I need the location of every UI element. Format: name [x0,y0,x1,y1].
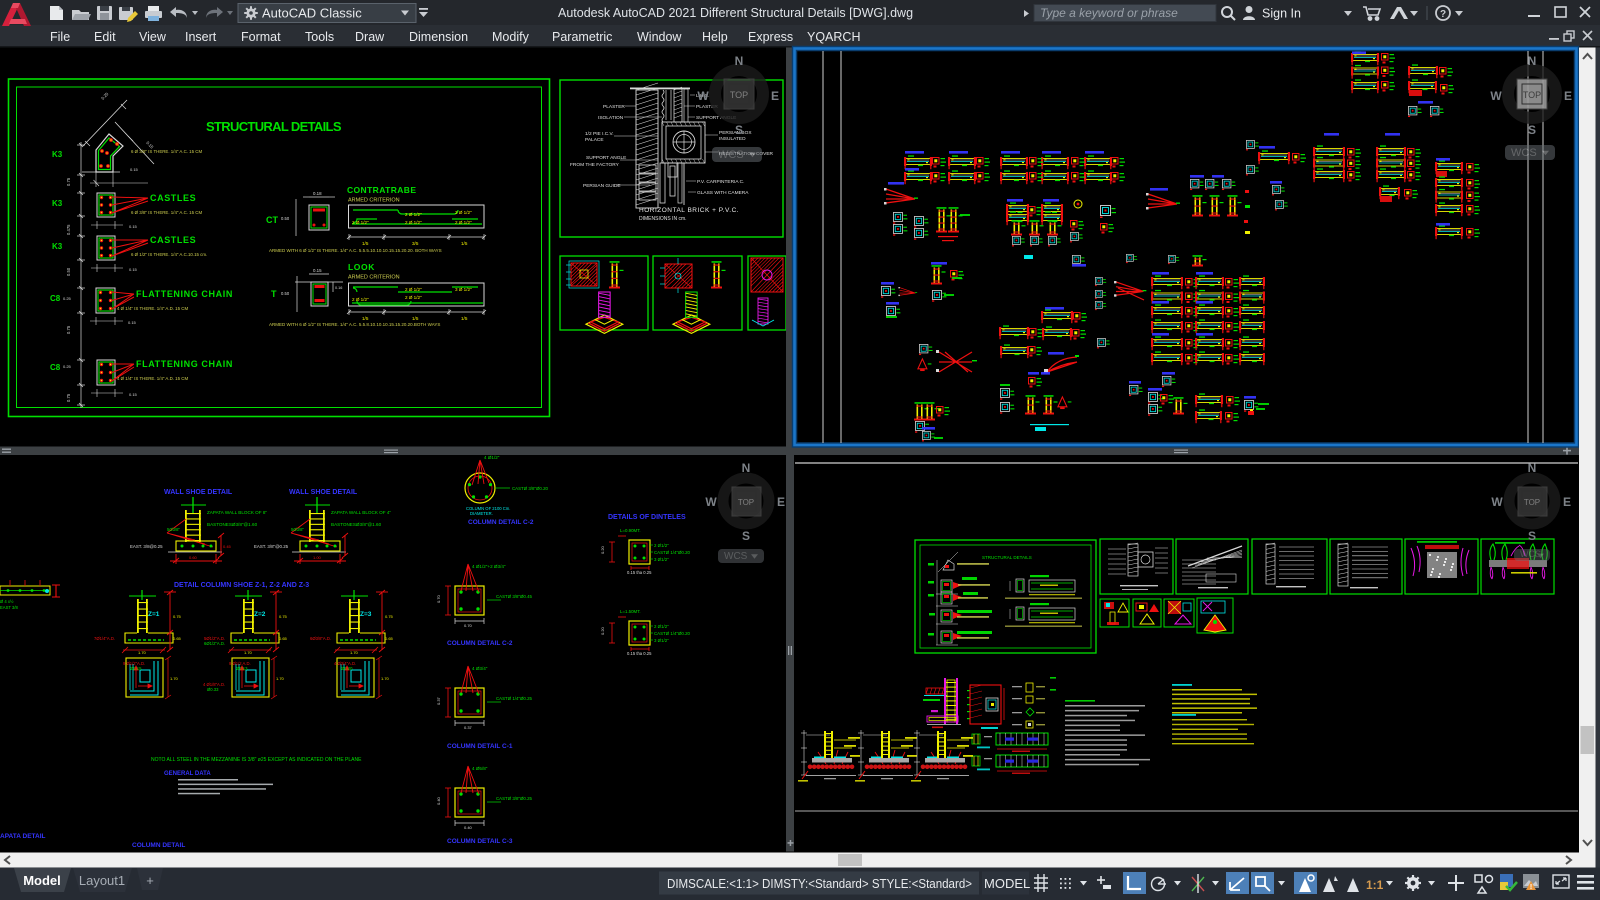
svg-text:CASTØ 1/4"Ø0.25: CASTØ 1/4"Ø0.25 [496,696,533,701]
svg-text:E: E [771,89,779,103]
svg-text:HORIZONTAL BRICK + P.V.C.: HORIZONTAL BRICK + P.V.C. [639,207,739,214]
svg-text:0.37: 0.37 [464,725,473,730]
svg-text:4 Ø 1/4" IS THERE. 1/4" A.D. 1: 4 Ø 1/4" IS THERE. 1/4" A.D. 15 CM [117,306,188,311]
svg-text:Autodesk AutoCAD 2021: Autodesk AutoCAD 2021 [558,6,696,20]
svg-text:K3: K3 [52,150,63,159]
svg-text:Ø 4 x½: Ø 4 x½ [0,599,14,604]
svg-text:2 Ø 1/2": 2 Ø 1/2" [455,220,472,225]
svg-text:WCS: WCS [718,149,744,161]
svg-text:CASTØ 1/4"Ø0.20: CASTØ 1/4"Ø0.20 [654,550,691,555]
svg-text:ISOLATION: ISOLATION [598,115,624,121]
svg-text:0.50: 0.50 [281,291,290,296]
svg-text:DIMENSIONS IN cm.: DIMENSIONS IN cm. [639,216,687,222]
svg-text:0.75: 0.75 [385,614,394,619]
svg-text:Ø0.15: Ø0.15 [130,666,142,671]
svg-text:Ø0.13: Ø0.13 [236,666,248,671]
svg-text:1:1: 1:1 [1366,878,1384,892]
svg-text:Draw: Draw [355,30,385,44]
svg-text:N: N [735,54,744,68]
svg-text:5Ø3/8": 5Ø3/8" [291,527,304,532]
svg-text:Sign In: Sign In [1262,7,1301,21]
svg-text:Modify: Modify [492,30,530,44]
svg-text:0.50: 0.50 [281,216,290,221]
svg-text:1.70: 1.70 [350,650,359,655]
svg-text:1.70: 1.70 [244,650,253,655]
svg-text:0.20: 0.20 [600,626,605,635]
svg-text:BASTONESØ3/8"@1.60: BASTONESØ3/8"@1.60 [207,522,258,527]
svg-text:1/2 PIE I.C.V.: 1/2 PIE I.C.V. [585,131,614,137]
svg-text:COLUMN DETAIL C-2: COLUMN DETAIL C-2 [447,640,513,647]
svg-text:ARMED WITH 6 Ø 1/2" IS T: ARMED WITH 6 Ø 1/2" IS THERE. 1/4" A.C. … [269,248,442,253]
svg-text:1.00: 1.00 [313,555,322,560]
svg-text:APATA DETAIL: APATA DETAIL [0,833,46,840]
svg-text:0.75: 0.75 [66,325,71,334]
svg-text:COLUMN DETAIL C-2: COLUMN DETAIL C-2 [468,519,534,526]
svg-text:AutoCAD Classic: AutoCAD Classic [262,6,362,21]
svg-text:ZAPATA WALL BLOCK OF 8": ZAPATA WALL BLOCK OF 8" [207,510,267,515]
svg-text:CASTØ 3/8"Ø0.45: CASTØ 3/8"Ø0.45 [496,594,533,599]
svg-text:0.15 tha 0.25: 0.15 tha 0.25 [627,570,652,575]
svg-text:CASTLES: CASTLES [150,193,196,203]
svg-text:View: View [139,30,167,44]
svg-text:1/5: 1/5 [461,241,468,246]
svg-text:DETAIL COLUMN SHOE Z-1, Z-2 AN: DETAIL COLUMN SHOE Z-1, Z-2 AND Z-3 [174,582,309,589]
svg-text:0.15: 0.15 [130,167,139,172]
svg-text:1.70: 1.70 [170,676,179,681]
svg-text:0.15: 0.15 [313,268,322,273]
svg-text:0.60: 0.60 [189,555,198,560]
svg-text:S: S [742,529,750,543]
svg-text:0.65: 0.65 [173,636,182,641]
svg-text:0.75: 0.75 [66,177,71,186]
svg-text:0.475: 0.475 [66,224,71,235]
svg-text:MODEL: MODEL [984,876,1030,891]
svg-text:4 Ø3/4": 4 Ø3/4" [472,666,488,671]
svg-text:2 Ø 1/2": 2 Ø 1/2" [352,297,369,302]
svg-text:ZAPATA WALL BLOCK OF 4": ZAPATA WALL BLOCK OF 4" [331,510,391,515]
svg-text:Express: Express [748,30,793,44]
svg-text:0.15: 0.15 [129,392,138,397]
svg-text:1/5: 1/5 [412,316,419,321]
svg-text:Ø0.33: Ø0.33 [207,687,219,692]
svg-text:N: N [1528,54,1537,68]
svg-text:0.50: 0.50 [66,267,71,276]
svg-text:CASTØ 1/4"Ø0.20: CASTØ 1/4"Ø0.20 [654,631,691,636]
svg-text:7Ø1/4"A.D.: 7Ø1/4"A.D. [94,636,115,641]
svg-text:2 Ø 1/2": 2 Ø 1/2" [405,220,422,225]
svg-text:E: E [777,495,785,509]
svg-text:4 Ø5/8": 4 Ø5/8" [472,766,488,771]
svg-text:+: + [146,873,154,888]
svg-text:Edit: Edit [94,30,116,44]
svg-text:Tools: Tools [305,30,334,44]
svg-text:6Ø3/8"A.D.: 6Ø3/8"A.D. [310,636,331,641]
svg-text:3 Ø1/2": 3 Ø1/2" [654,638,669,643]
svg-text:T: T [271,289,277,299]
svg-text:STRUCTURAL DETAILS: STRUCTURAL DETAILS [206,119,343,134]
svg-text:Window: Window [637,30,682,44]
svg-text:DIAMETER.: DIAMETER. [470,511,493,516]
svg-text:1/5: 1/5 [461,316,468,321]
svg-text:0.25: 0.25 [63,296,72,301]
svg-text:Help: Help [702,30,728,44]
svg-text:6 Ø 1/2" IS THERE. 1/4" A.C.10: 6 Ø 1/2" IS THERE. 1/4" A.C.10.15 cm. [131,252,207,257]
svg-text:Format: Format [241,30,281,44]
svg-text:0.75: 0.75 [279,614,288,619]
svg-text:Type a keyword or phrase: Type a keyword or phrase [1040,6,1178,20]
svg-text:TOP: TOP [1523,90,1541,100]
svg-text:Ø0.20: Ø0.20 [341,666,353,671]
svg-text:0.65: 0.65 [279,636,288,641]
svg-text:C8: C8 [50,363,61,372]
svg-text:2 Ø 1/2": 2 Ø 1/2" [352,220,369,225]
svg-text:3 Ø1/2": 3 Ø1/2" [654,557,669,562]
svg-text:N: N [742,461,751,475]
svg-text:Dimension: Dimension [409,30,468,44]
svg-text:Model: Model [23,873,61,888]
svg-text:C8: C8 [50,294,61,303]
svg-text:0.15 tha 0.25: 0.15 tha 0.25 [627,651,652,656]
svg-text:CONTRATRABE: CONTRATRABE [347,185,416,195]
svg-text:0.16: 0.16 [335,286,342,290]
svg-text:0.15: 0.15 [128,320,137,325]
svg-text:6 Ø 3/8" IS THERE. 1/4" A.C. 1: 6 Ø 3/8" IS THERE. 1/4" A.C. 15 CM [131,149,202,154]
svg-text:LOOK: LOOK [348,262,375,272]
svg-text:1.70: 1.70 [276,676,285,681]
svg-text:DIMSCALE:<1:1> DIMSTY:<Standar: DIMSCALE:<1:1> DIMSTY:<Standard> STYLE:<… [667,876,972,891]
svg-text:0.18: 0.18 [313,191,322,196]
svg-text:EAST 3/8: EAST 3/8 [0,605,19,610]
svg-text:WCS: WCS [1511,147,1537,159]
svg-text:0.20: 0.20 [600,545,605,554]
svg-text:COLUMN DETAIL C-1: COLUMN DETAIL C-1 [447,743,513,750]
svg-text:S: S [1528,123,1536,137]
svg-text:K3: K3 [52,199,63,208]
svg-text:E: E [1563,495,1571,509]
svg-text:0.37: 0.37 [436,696,441,705]
svg-text:WALL SHOE DETAIL: WALL SHOE DETAIL [164,489,233,496]
svg-text:ARMED WITH 6 Ø 1/2" IS T: ARMED WITH 6 Ø 1/2" IS THERE. 1/4" A.C. … [269,322,440,327]
svg-text:0.75: 0.75 [173,614,182,619]
svg-text:S: S [735,123,743,137]
svg-text:CT: CT [266,215,278,225]
svg-text:4 Ø 1/4" IS THERE. 1/4" A.D. 1: 4 Ø 1/4" IS THERE. 1/4" A.D. 15 CM [117,376,188,381]
svg-text:COLUMN DETAIL: COLUMN DETAIL [132,842,185,849]
svg-text:0.40: 0.40 [464,825,473,830]
svg-text:0.70: 0.70 [464,623,473,628]
svg-text:L=0.90MT.: L=0.90MT. [620,528,641,533]
svg-text:N: N [1528,461,1537,475]
svg-text:0.15: 0.15 [129,267,138,272]
svg-text:DETAILS OF DINTELES: DETAILS OF DINTELES [608,514,686,521]
svg-text:GENERAL DATA: GENERAL DATA [164,771,211,777]
svg-text:S: S [1528,529,1536,543]
svg-text:6 Ø 3/8" IS THERE. 1/4" A.C. 1: 6 Ø 3/8" IS THERE. 1/4" A.C. 15 CM [131,210,202,215]
svg-text:TOP: TOP [738,498,754,507]
svg-text:BASTONESØ3/8"@1.60: BASTONESØ3/8"@1.60 [331,522,382,527]
svg-text:GLASS WITH CAMERA: GLASS WITH CAMERA [697,190,749,196]
svg-text:W: W [705,495,717,509]
svg-text:1/5: 1/5 [362,241,369,246]
svg-text:FLATTENING CHAIN: FLATTENING CHAIN [136,359,233,369]
svg-text:1.70: 1.70 [381,676,390,681]
svg-text:2 Ø1/2": 2 Ø1/2" [654,543,669,548]
svg-text:PERSIAN GUIDE: PERSIAN GUIDE [583,183,621,189]
svg-text:2 Ø1/2": 2 Ø1/2" [654,624,669,629]
svg-text:W: W [1491,495,1503,509]
svg-text:TOP: TOP [730,90,748,100]
svg-text:2 Ø 1/2": 2 Ø 1/2" [405,287,422,292]
svg-text:0.25: 0.25 [63,364,72,369]
svg-text:WALL SHOE DETAIL: WALL SHOE DETAIL [289,489,358,496]
svg-text:0.45: 0.45 [223,544,232,549]
svg-text:CASTØ 3/8"Ø0.20: CASTØ 3/8"Ø0.20 [512,486,549,491]
svg-text:L=1.50MT.: L=1.50MT. [620,609,641,614]
svg-text:0.40: 0.40 [436,796,441,805]
svg-text:0.75: 0.75 [66,393,71,402]
svg-text:ARMED CRITERION: ARMED CRITERION [348,198,400,204]
svg-text:P.V. CARPINTERIA C.: P.V. CARPINTERIA C. [697,179,744,185]
svg-text:0.15: 0.15 [129,224,138,229]
svg-text:FROM THE FACTORY: FROM THE FACTORY [570,162,620,168]
svg-text:Parametric: Parametric [552,30,612,44]
svg-text:2 Ø 1/2": 2 Ø 1/2" [405,212,422,217]
svg-text:3 Ø 1/2": 3 Ø 1/2" [455,210,472,215]
svg-text:PLASTER: PLASTER [603,104,625,110]
svg-text:NOTO ALL STEEL IN THE MEZ: NOTO ALL STEEL IN THE MEZZANINE IS 3/8" … [151,757,362,763]
svg-text:COLUMN DETAIL C-3: COLUMN DETAIL C-3 [447,838,513,845]
svg-text:0.70: 0.70 [436,594,441,603]
svg-text:FLATTENING CHAIN: FLATTENING CHAIN [136,289,233,299]
svg-text:W: W [697,89,709,103]
svg-text:1/5: 1/5 [362,316,369,321]
svg-text:File: File [50,30,70,44]
svg-text:1.70: 1.70 [138,650,147,655]
svg-text:ARMED CRITERION: ARMED CRITERION [348,275,400,281]
svg-text:5Ø3/8": 5Ø3/8" [167,527,180,532]
svg-text:PALACE: PALACE [585,137,604,143]
svg-text:E: E [1564,89,1572,103]
svg-text:CASTØ 3/8"Ø0.25: CASTØ 3/8"Ø0.25 [496,796,533,801]
svg-text:Layout1: Layout1 [79,873,125,888]
svg-text:!: ! [1530,884,1532,891]
svg-text:Different Structural Details [: Different Structural Details [DWG].dwg [700,6,913,20]
svg-text:3 Ø 1/2": 3 Ø 1/2" [455,287,472,292]
svg-text:4 Ø1/2": 4 Ø1/2" [484,455,500,460]
svg-text:Z=3: Z=3 [360,611,372,618]
svg-text:3/5: 3/5 [412,241,419,246]
svg-text:YQARCH: YQARCH [807,30,860,44]
svg-text:STRUCTURAL DETAILS: STRUCTURAL DETAILS [982,555,1032,560]
svg-text:WCS: WCS [724,551,748,562]
svg-text:Z=1: Z=1 [148,611,160,618]
svg-text:2 Ø 1/2": 2 Ø 1/2" [405,295,422,300]
svg-text:EAST. 3/8"@0.25: EAST. 3/8"@0.25 [254,544,289,549]
svg-text:K3: K3 [52,242,63,251]
svg-text:W: W [1490,89,1502,103]
svg-text:TOP: TOP [1524,498,1540,507]
svg-text:CASTLES: CASTLES [150,235,196,245]
svg-text:EAST. 3/8@0.25: EAST. 3/8@0.25 [130,544,163,549]
svg-text:Insert: Insert [185,30,217,44]
svg-text:0.65: 0.65 [385,636,394,641]
svg-text:?: ? [1440,9,1446,20]
svg-text:4 Ø1/2"+2 Ø3/4": 4 Ø1/2"+2 Ø3/4" [472,564,506,569]
svg-text:6Ø1/2"A.D.: 6Ø1/2"A.D. [204,641,225,646]
svg-text:Z=2: Z=2 [254,611,266,618]
